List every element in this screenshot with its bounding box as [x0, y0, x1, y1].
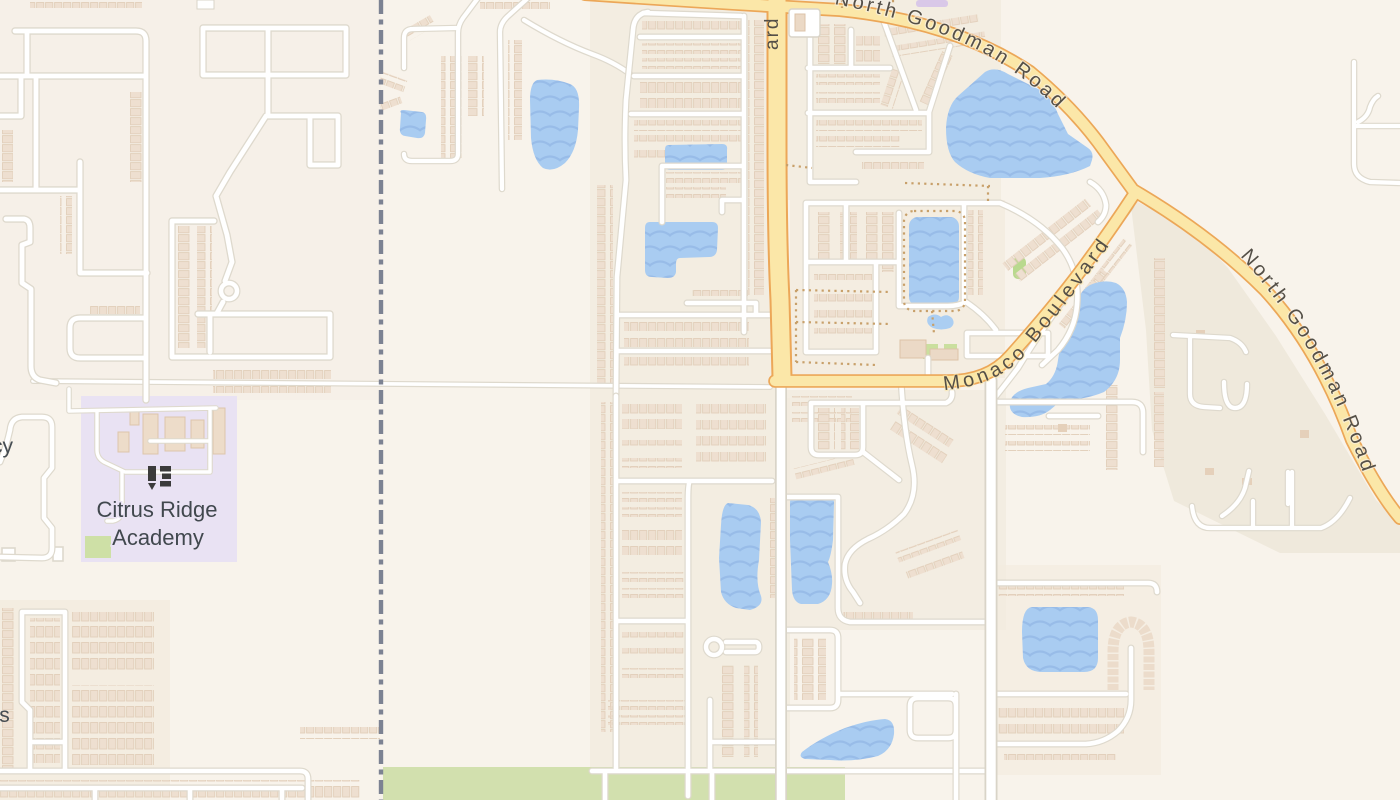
svg-text:ard: ard [762, 17, 783, 50]
svg-text:’s: ’s [0, 704, 10, 727]
svg-text:cy: cy [0, 435, 14, 458]
svg-text:Citrus Ridge: Citrus Ridge [96, 497, 217, 522]
svg-text:Academy: Academy [112, 525, 204, 550]
